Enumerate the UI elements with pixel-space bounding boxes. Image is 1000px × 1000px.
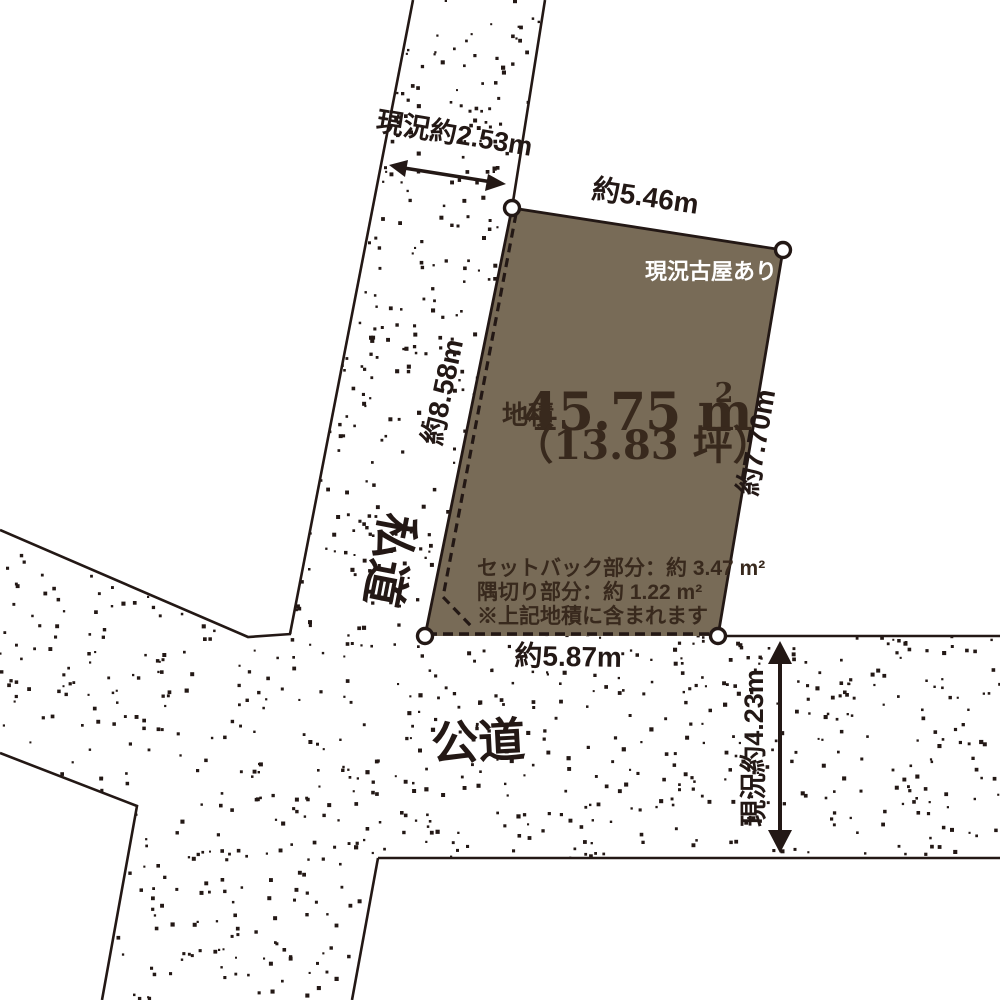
land-plot-diagram: 現況約2.53m 約5.46m 約8.58m 約7.70m 約5.87m 現況約… [0,0,1000,1000]
corner-marker-bottom-right [711,629,726,644]
private-road-right-edge [512,0,545,208]
dimension-top-road-width: 現況約2.53m [374,105,535,162]
area-tsubo: （13.83 坪） [513,422,772,469]
top-road-width-arrow [389,160,506,191]
corner-marker-top-left [505,201,520,216]
public-road-label: 公道 [430,713,527,771]
dimension-bottom-edge: 約5.87m [514,639,622,673]
area-unit-superscript: 2 [715,378,734,409]
dimension-right-road-width: 現況約4.23m [738,669,769,827]
setback-note: セットバック部分：約 3.47 m² [477,556,765,580]
right-road-width-arrow [768,641,792,853]
dimension-top-edge: 約5.46m [590,172,701,220]
included-note: ※上記地積に含まれます [477,604,708,628]
dimension-left-edge: 約8.58m [415,336,469,448]
corner-marker-top-right [776,243,791,258]
corner-marker-bottom-left [418,629,433,644]
left-branch-bottom-edge [0,753,137,1000]
lower-branch-right-edge [352,858,378,1000]
diagram-canvas: 現況約2.53m 約5.46m 約8.58m 約7.70m 約5.87m 現況約… [0,0,1000,1000]
left-branch-top-edge [0,530,291,637]
existing-house-note: 現況古屋あり [645,259,777,284]
corner-cut-note: 隅切り部分：約 1.22 m² [477,580,702,604]
